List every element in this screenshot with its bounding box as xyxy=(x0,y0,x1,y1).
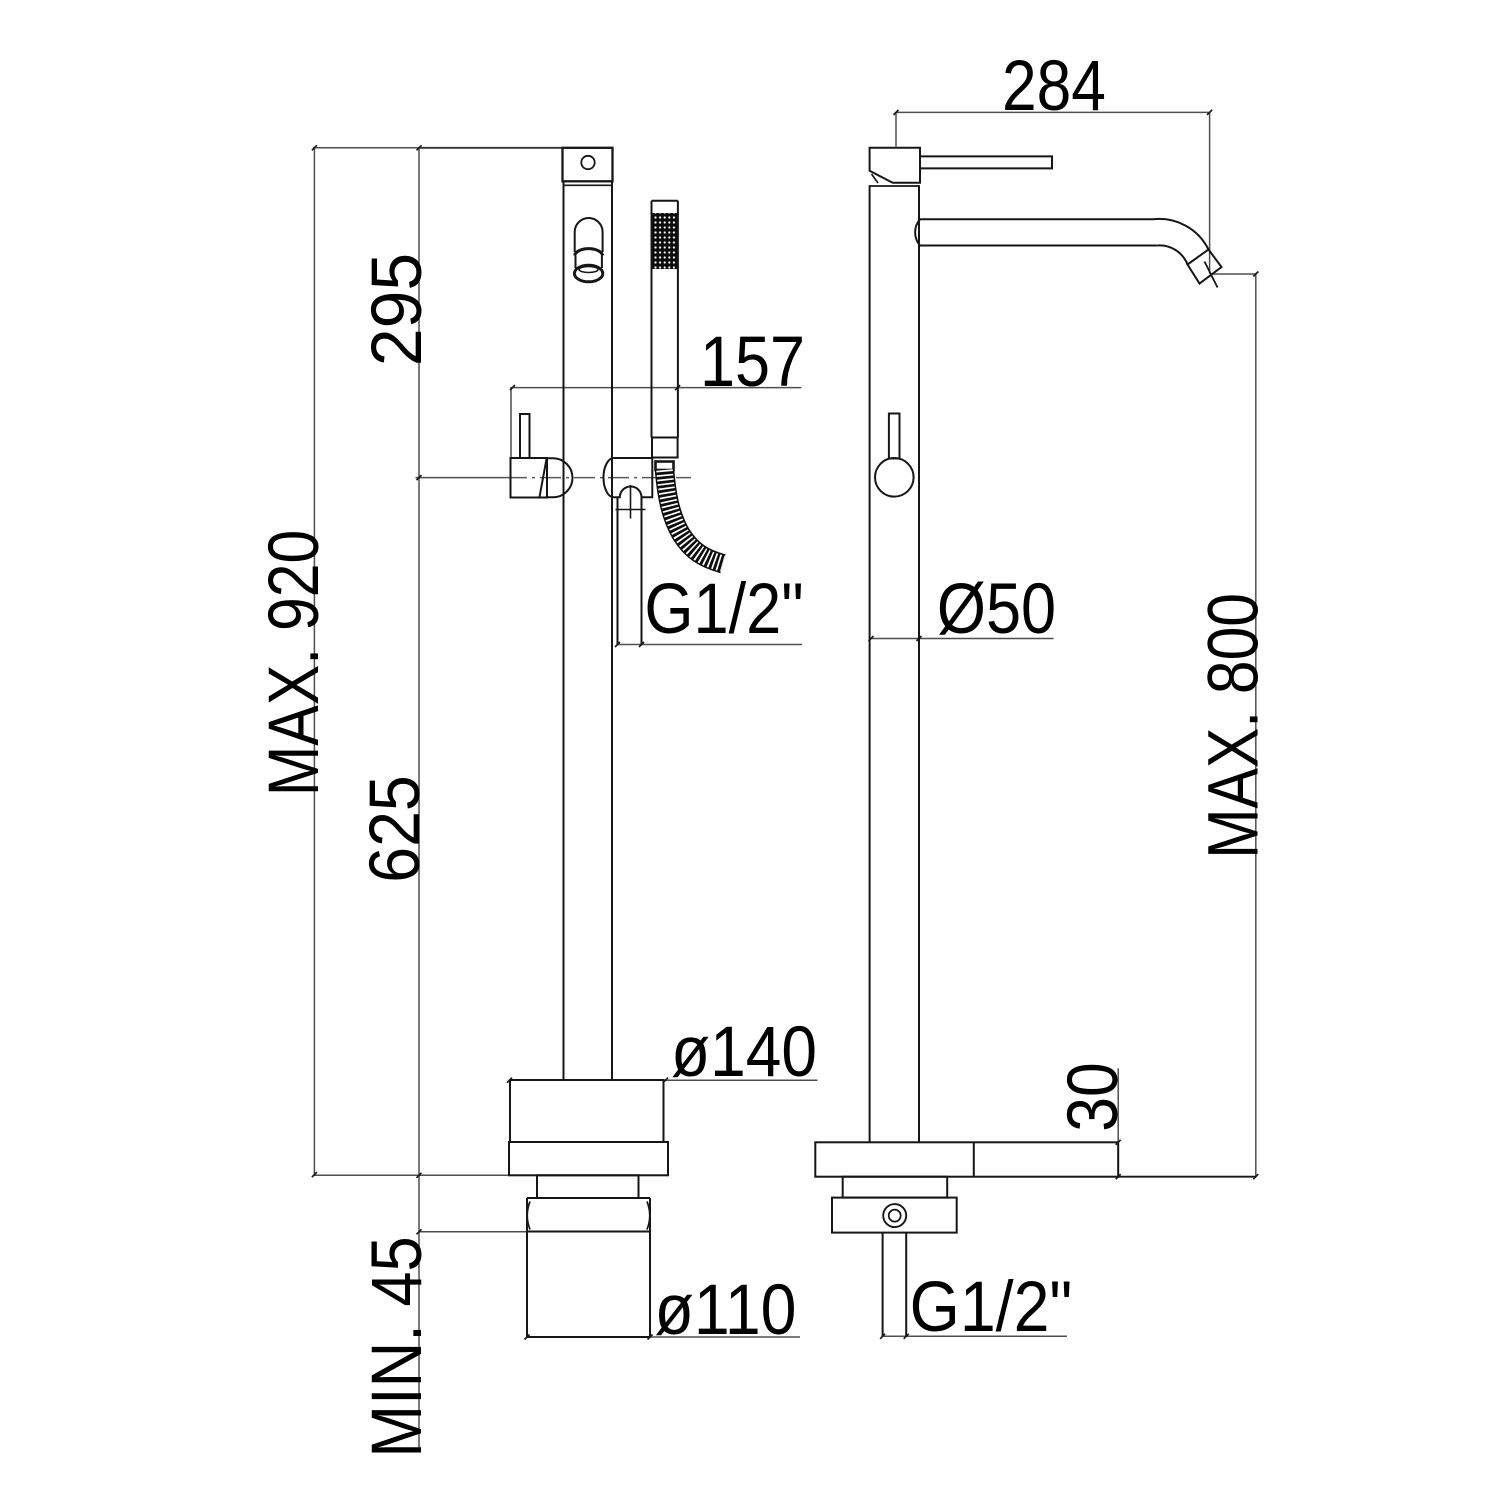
svg-text:ø110: ø110 xyxy=(655,1271,797,1350)
svg-text:ø140: ø140 xyxy=(671,1013,817,1092)
svg-text:MAX. 920: MAX. 920 xyxy=(254,530,334,797)
svg-text:Ø50: Ø50 xyxy=(937,570,1056,649)
svg-text:625: 625 xyxy=(356,775,435,882)
svg-text:284: 284 xyxy=(1002,47,1106,126)
svg-text:G1/2": G1/2" xyxy=(644,570,803,649)
svg-text:295: 295 xyxy=(357,253,437,366)
svg-text:G1/2": G1/2" xyxy=(910,1268,1073,1347)
svg-text:157: 157 xyxy=(700,323,805,402)
svg-text:MAX. 800: MAX. 800 xyxy=(1193,593,1273,859)
svg-text:MIN. 45: MIN. 45 xyxy=(358,1236,437,1457)
svg-text:30: 30 xyxy=(1053,1062,1133,1131)
